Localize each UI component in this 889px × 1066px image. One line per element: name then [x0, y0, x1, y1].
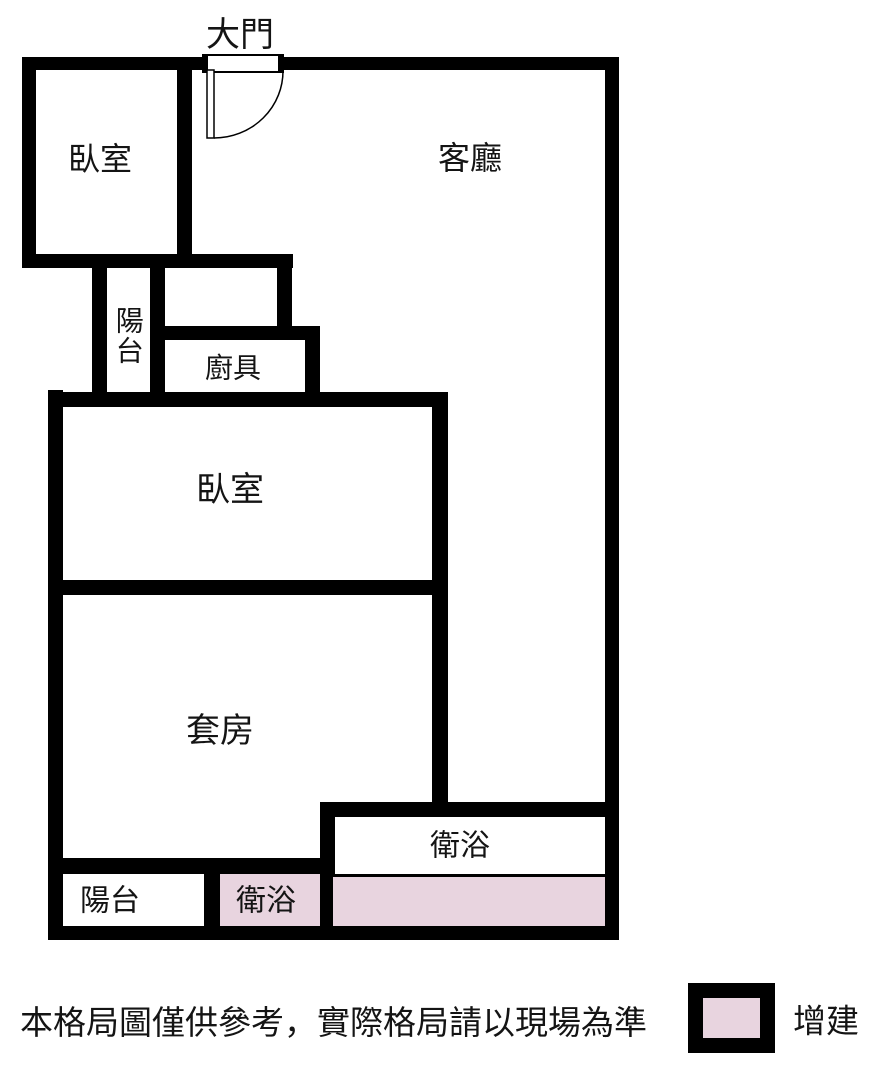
wall-segment: [320, 802, 619, 817]
wall-segment: [305, 340, 320, 394]
floorplan: 大門 臥室 客廳 陽台 廚具 臥室 套房 衛浴 陽台 衛浴 本格局圖僅供參考，實…: [0, 0, 889, 1066]
room-label-bathroom-main: 衛浴: [430, 830, 490, 862]
room-label-living-room: 客廳: [438, 142, 502, 176]
entry-door-icon: [200, 50, 290, 145]
wall-segment: [48, 392, 448, 407]
wall-segment: [48, 580, 448, 595]
room-label-balcony-mid: 陽台: [113, 306, 142, 366]
legend-addition-swatch: [688, 983, 775, 1053]
door-swing-arc: [214, 70, 283, 138]
wall-segment: [432, 392, 448, 817]
wall-segment: [150, 268, 165, 392]
door-leaf: [207, 70, 214, 138]
wall-segment: [177, 70, 192, 268]
wall-segment: [48, 858, 333, 874]
wall-segment: [22, 57, 619, 70]
bathroom-strip-separator: [333, 874, 605, 877]
wall-segment: [92, 268, 107, 392]
addition-area-bathroom-strip: [333, 877, 605, 926]
room-label-balcony-bottom: 陽台: [80, 885, 140, 917]
room-label-kitchen: 廚具: [205, 353, 261, 382]
door-frame-cap-right: [278, 55, 283, 72]
door-frame: [203, 55, 283, 72]
wall-segment: [204, 873, 220, 940]
wall-segment: [22, 254, 293, 268]
room-label-suite: 套房: [186, 714, 254, 750]
room-label-bedroom-top: 臥室: [68, 143, 132, 177]
wall-segment: [165, 326, 320, 340]
room-label-main-door: 大門: [206, 18, 274, 54]
wall-segment: [22, 57, 36, 268]
legend-addition-label: 增建: [793, 1005, 859, 1040]
room-label-bathroom-addition: 衛浴: [236, 885, 296, 917]
room-label-bedroom-mid: 臥室: [196, 473, 264, 509]
disclaimer-text: 本格局圖僅供參考，實際格局請以現場為準: [20, 996, 647, 1044]
